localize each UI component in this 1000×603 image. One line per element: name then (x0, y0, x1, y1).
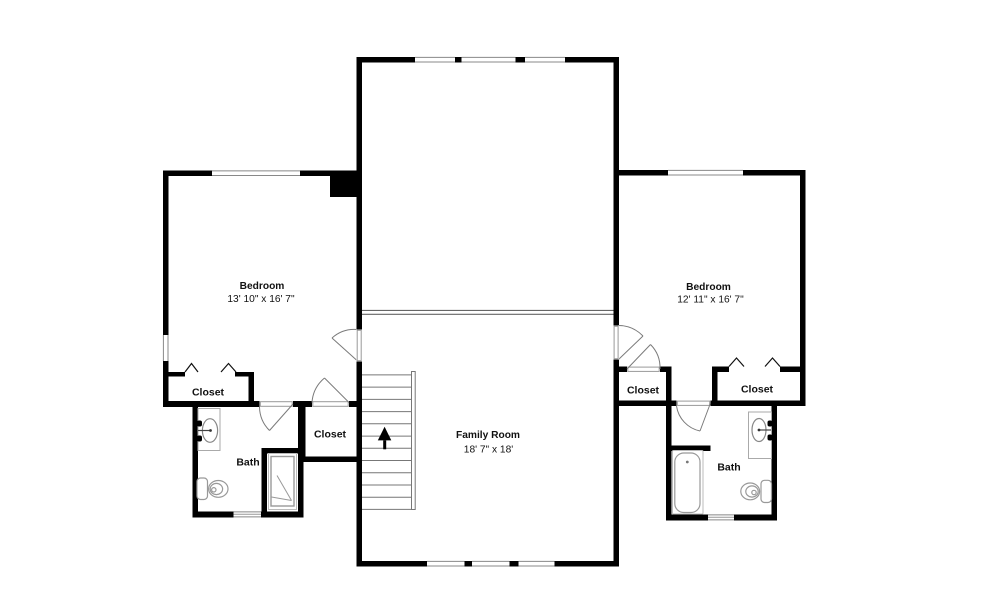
svg-text:Bedroom: Bedroom (240, 281, 285, 292)
svg-text:Closet: Closet (741, 384, 774, 396)
svg-text:13' 10" x 16' 7": 13' 10" x 16' 7" (227, 294, 295, 305)
svg-text:Bath: Bath (717, 462, 740, 474)
svg-text:Closet: Closet (627, 385, 660, 397)
svg-text:Closet: Closet (314, 428, 347, 440)
svg-text:12' 11" x 16' 7": 12' 11" x 16' 7" (677, 295, 744, 306)
svg-text:Bath: Bath (236, 457, 259, 469)
svg-text:18' 7" x 18': 18' 7" x 18' (464, 444, 513, 455)
svg-text:Bedroom: Bedroom (686, 282, 731, 293)
svg-text:Family Room: Family Room (456, 430, 520, 441)
svg-text:Closet: Closet (192, 387, 225, 399)
